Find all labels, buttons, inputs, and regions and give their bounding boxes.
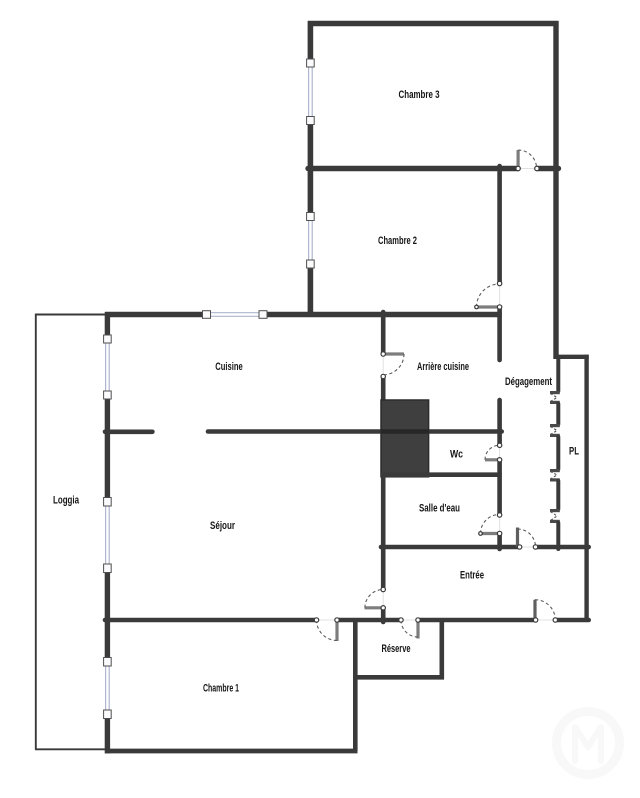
svg-text:PL: PL [569, 446, 579, 458]
svg-text:Chambre 3: Chambre 3 [399, 89, 440, 101]
svg-text:Arrière cuisine: Arrière cuisine [417, 361, 469, 373]
svg-text:Cuisine: Cuisine [215, 361, 243, 373]
svg-text:Entrée: Entrée [460, 570, 484, 582]
svg-text:Salle d'eau: Salle d'eau [419, 503, 460, 515]
svg-text:Séjour: Séjour [210, 520, 236, 532]
svg-text:Loggia: Loggia [53, 495, 80, 507]
svg-text:Dégagement: Dégagement [505, 376, 552, 388]
svg-text:Chambre 1: Chambre 1 [203, 683, 239, 695]
svg-text:Wc: Wc [450, 449, 463, 461]
svg-text:Réserve: Réserve [382, 643, 411, 655]
svg-text:Chambre 2: Chambre 2 [378, 235, 417, 247]
